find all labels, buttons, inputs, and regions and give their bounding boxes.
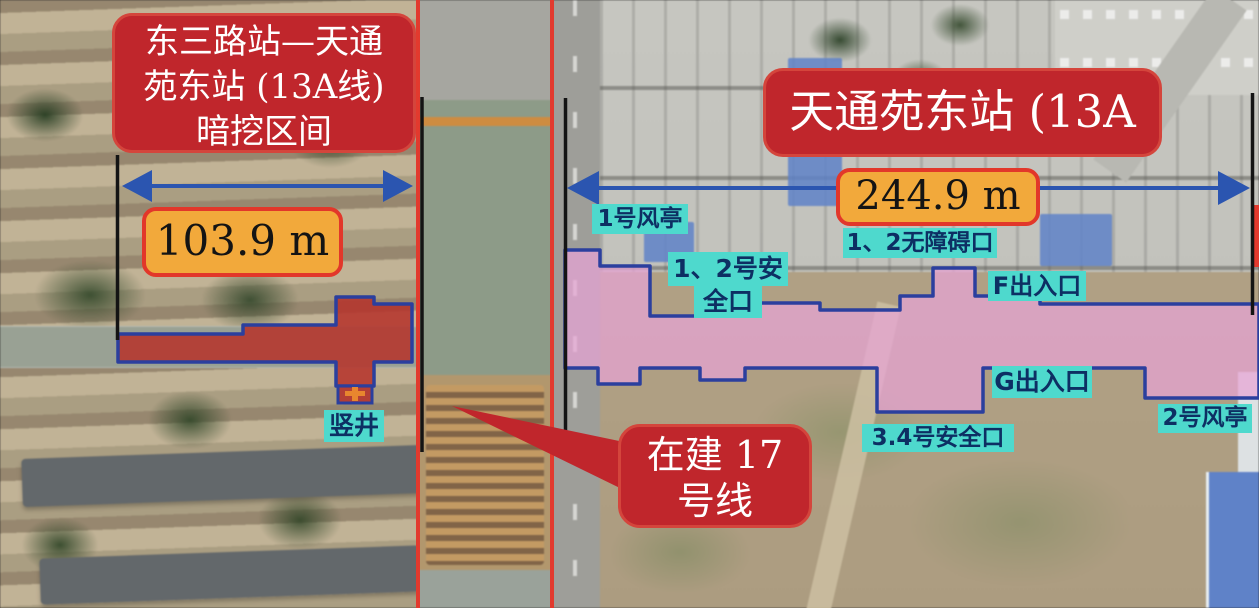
tunnel-section-line3: 暗挖区间 (115, 110, 413, 155)
shaft-label: 竖井 (324, 410, 384, 442)
safety-exit-1-2-label-line1: 1、2号安 (668, 252, 788, 286)
line17-callout-leader (452, 406, 624, 490)
exit-g-label: G出入口 (992, 366, 1092, 398)
tunnel-length-badge: 103.9 m (142, 207, 343, 277)
line17-line1: 在建 17 (621, 432, 809, 478)
station-length-badge: 244.9 m (836, 168, 1040, 226)
satellite-annotation-map: 东三路站—天通 苑东站 (13A线) 暗挖区间 103.9 m 天通苑东站 (1… (0, 0, 1259, 608)
exit-f-label: F出入口 (988, 271, 1086, 301)
vent-shaft-2-label: 2号风亭 (1158, 404, 1252, 433)
tunnel-section-callout: 东三路站—天通 苑东站 (13A线) 暗挖区间 (112, 13, 416, 153)
tunnel-span-arrow (122, 170, 413, 202)
shaft-cross-mark (345, 391, 365, 396)
tunnel-section-line1: 东三路站—天通 (115, 20, 413, 65)
safety-exit-1-2-label-line2: 全口 (694, 286, 762, 318)
line17-callout: 在建 17 号线 (618, 424, 812, 528)
safety-exit-3-4-label: 3.4号安全口 (862, 424, 1014, 452)
tunnel-section-line2: 苑东站 (13A线) (115, 65, 413, 110)
vent-shaft-1-label: 1号风亭 (592, 204, 688, 234)
station-title-callout: 天通苑东站 (13A线) (763, 68, 1162, 157)
line17-line2: 号线 (621, 478, 809, 524)
tunnel-footprint (118, 297, 412, 386)
barrier-free-entrance-1-2-label: 1、2无障碍口 (843, 228, 997, 258)
